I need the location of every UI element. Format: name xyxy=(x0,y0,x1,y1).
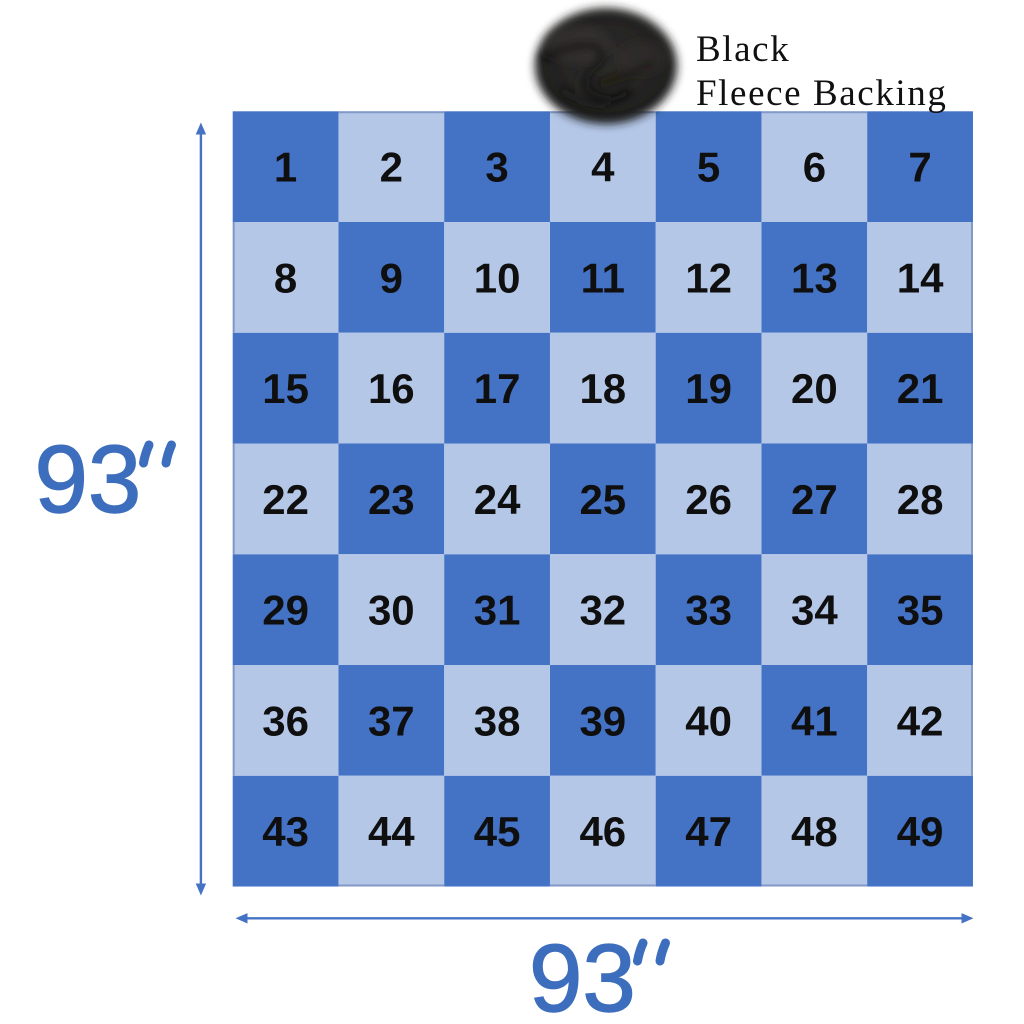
svg-text:39: 39 xyxy=(579,697,626,744)
svg-text:46: 46 xyxy=(579,808,626,855)
svg-text:42: 42 xyxy=(897,697,944,744)
svg-text:Fleece Backing: Fleece Backing xyxy=(696,73,948,114)
svg-text:93: 93 xyxy=(529,925,636,1024)
svg-text:14: 14 xyxy=(897,254,944,301)
svg-text:30: 30 xyxy=(368,587,415,634)
svg-text:21: 21 xyxy=(897,365,944,412)
svg-text:9: 9 xyxy=(380,254,403,301)
svg-text:6: 6 xyxy=(803,144,826,191)
svg-text:Black: Black xyxy=(696,29,790,70)
svg-text:25: 25 xyxy=(579,476,626,523)
svg-text:93: 93 xyxy=(35,426,142,533)
svg-text:45: 45 xyxy=(474,808,521,855)
svg-text:13: 13 xyxy=(791,254,838,301)
svg-text:38: 38 xyxy=(474,697,521,744)
svg-text:26: 26 xyxy=(685,476,732,523)
svg-text:5: 5 xyxy=(697,144,720,191)
svg-text:49: 49 xyxy=(897,808,944,855)
svg-text:32: 32 xyxy=(579,587,626,634)
svg-text:24: 24 xyxy=(474,476,521,523)
svg-text:41: 41 xyxy=(791,697,838,744)
svg-text:44: 44 xyxy=(368,808,415,855)
svg-text:43: 43 xyxy=(262,808,309,855)
svg-text:11: 11 xyxy=(581,254,625,301)
svg-text:2: 2 xyxy=(380,144,403,191)
svg-text:29: 29 xyxy=(262,587,309,634)
svg-text:16: 16 xyxy=(368,365,415,412)
svg-text:1: 1 xyxy=(274,144,297,191)
svg-text:27: 27 xyxy=(791,476,838,523)
svg-text:18: 18 xyxy=(579,365,626,412)
svg-text:33: 33 xyxy=(685,587,732,634)
svg-text:31: 31 xyxy=(474,587,521,634)
svg-text:10: 10 xyxy=(474,254,521,301)
svg-text:35: 35 xyxy=(897,587,944,634)
svg-text:3: 3 xyxy=(485,144,508,191)
svg-text:15: 15 xyxy=(262,365,309,412)
svg-text:34: 34 xyxy=(791,587,838,634)
svg-text:19: 19 xyxy=(685,365,732,412)
svg-text:37: 37 xyxy=(368,697,415,744)
svg-text:7: 7 xyxy=(908,144,931,191)
svg-text:4: 4 xyxy=(591,144,615,191)
svg-text:48: 48 xyxy=(791,808,838,855)
svg-text:47: 47 xyxy=(685,808,732,855)
svg-text:20: 20 xyxy=(791,365,838,412)
svg-text:40: 40 xyxy=(685,697,732,744)
svg-text:36: 36 xyxy=(262,697,309,744)
svg-text:22: 22 xyxy=(262,476,309,523)
svg-text:8: 8 xyxy=(274,254,297,301)
svg-text:23: 23 xyxy=(368,476,415,523)
svg-text:28: 28 xyxy=(897,476,944,523)
svg-text:17: 17 xyxy=(474,365,521,412)
svg-text:12: 12 xyxy=(685,254,732,301)
